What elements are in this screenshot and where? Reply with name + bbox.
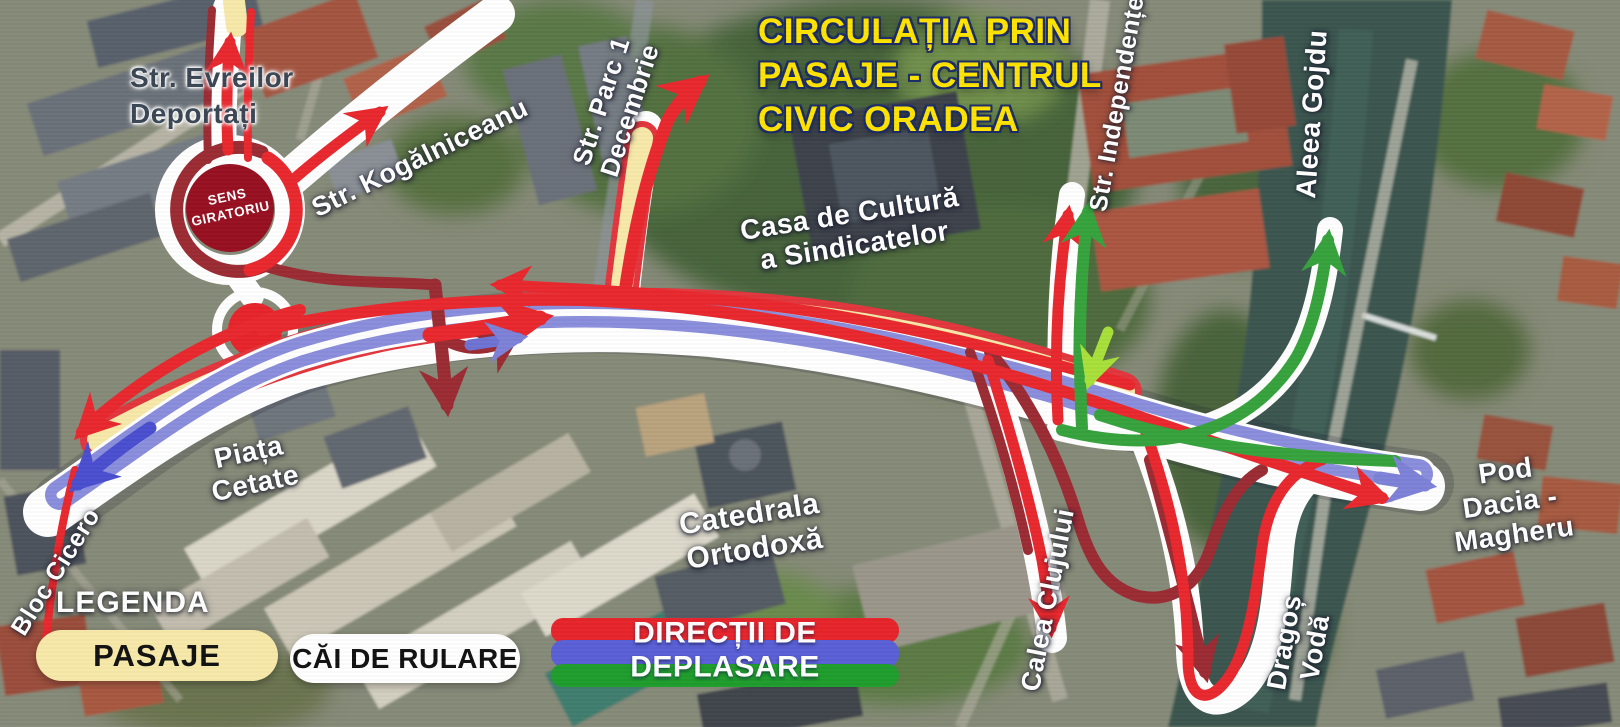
legend-item-cai-de-rulare: CĂI DE RULARE bbox=[290, 634, 520, 683]
place-label-pod-dacia-magheru: Pod Dacia - Magheru bbox=[1444, 447, 1576, 559]
map-screenshot: CIRCULAȚIA PRIN PASAJE - CENTRUL CIVIC O… bbox=[0, 0, 1620, 727]
street-label-evreilor-deportati: Str. Evreilor Deportați bbox=[130, 60, 294, 133]
legend-heading: LEGENDA bbox=[56, 586, 210, 620]
legend-item-pasaje: PASAJE bbox=[36, 630, 278, 681]
map-title: CIRCULAȚIA PRIN PASAJE - CENTRUL CIVIC O… bbox=[758, 10, 1102, 142]
legend-item-directii: DIRECȚII DE DEPLASARE bbox=[551, 618, 899, 688]
legend-item-directii-label: DIRECȚII DE DEPLASARE bbox=[551, 616, 899, 684]
